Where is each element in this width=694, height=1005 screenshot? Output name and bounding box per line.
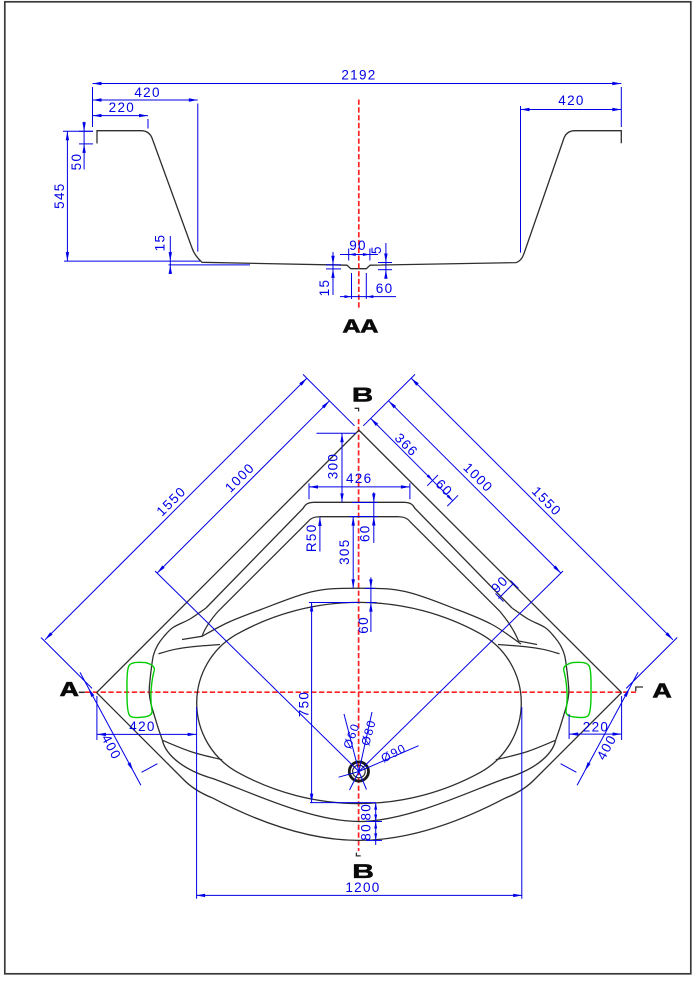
svg-text:426: 426	[346, 471, 372, 486]
svg-text:80: 80	[359, 823, 374, 841]
svg-text:80: 80	[359, 803, 374, 821]
svg-text:220: 220	[109, 100, 135, 115]
svg-text:60: 60	[356, 616, 371, 634]
svg-text:15: 15	[153, 234, 168, 252]
svg-text:50: 50	[69, 153, 84, 171]
svg-text:420: 420	[558, 93, 584, 108]
svg-text:R50: R50	[304, 523, 319, 552]
svg-text:2192: 2192	[341, 68, 376, 83]
svg-text:420: 420	[129, 719, 155, 734]
svg-text:15: 15	[317, 279, 332, 297]
svg-text:60: 60	[358, 524, 373, 542]
svg-text:300: 300	[326, 453, 341, 479]
svg-text:5: 5	[369, 245, 384, 254]
svg-text:1200: 1200	[345, 880, 380, 895]
svg-text:750: 750	[297, 691, 312, 717]
svg-text:545: 545	[52, 182, 67, 208]
svg-text:420: 420	[134, 85, 160, 100]
svg-text:60: 60	[376, 281, 394, 296]
svg-text:90: 90	[349, 238, 367, 253]
svg-text:305: 305	[337, 538, 352, 564]
